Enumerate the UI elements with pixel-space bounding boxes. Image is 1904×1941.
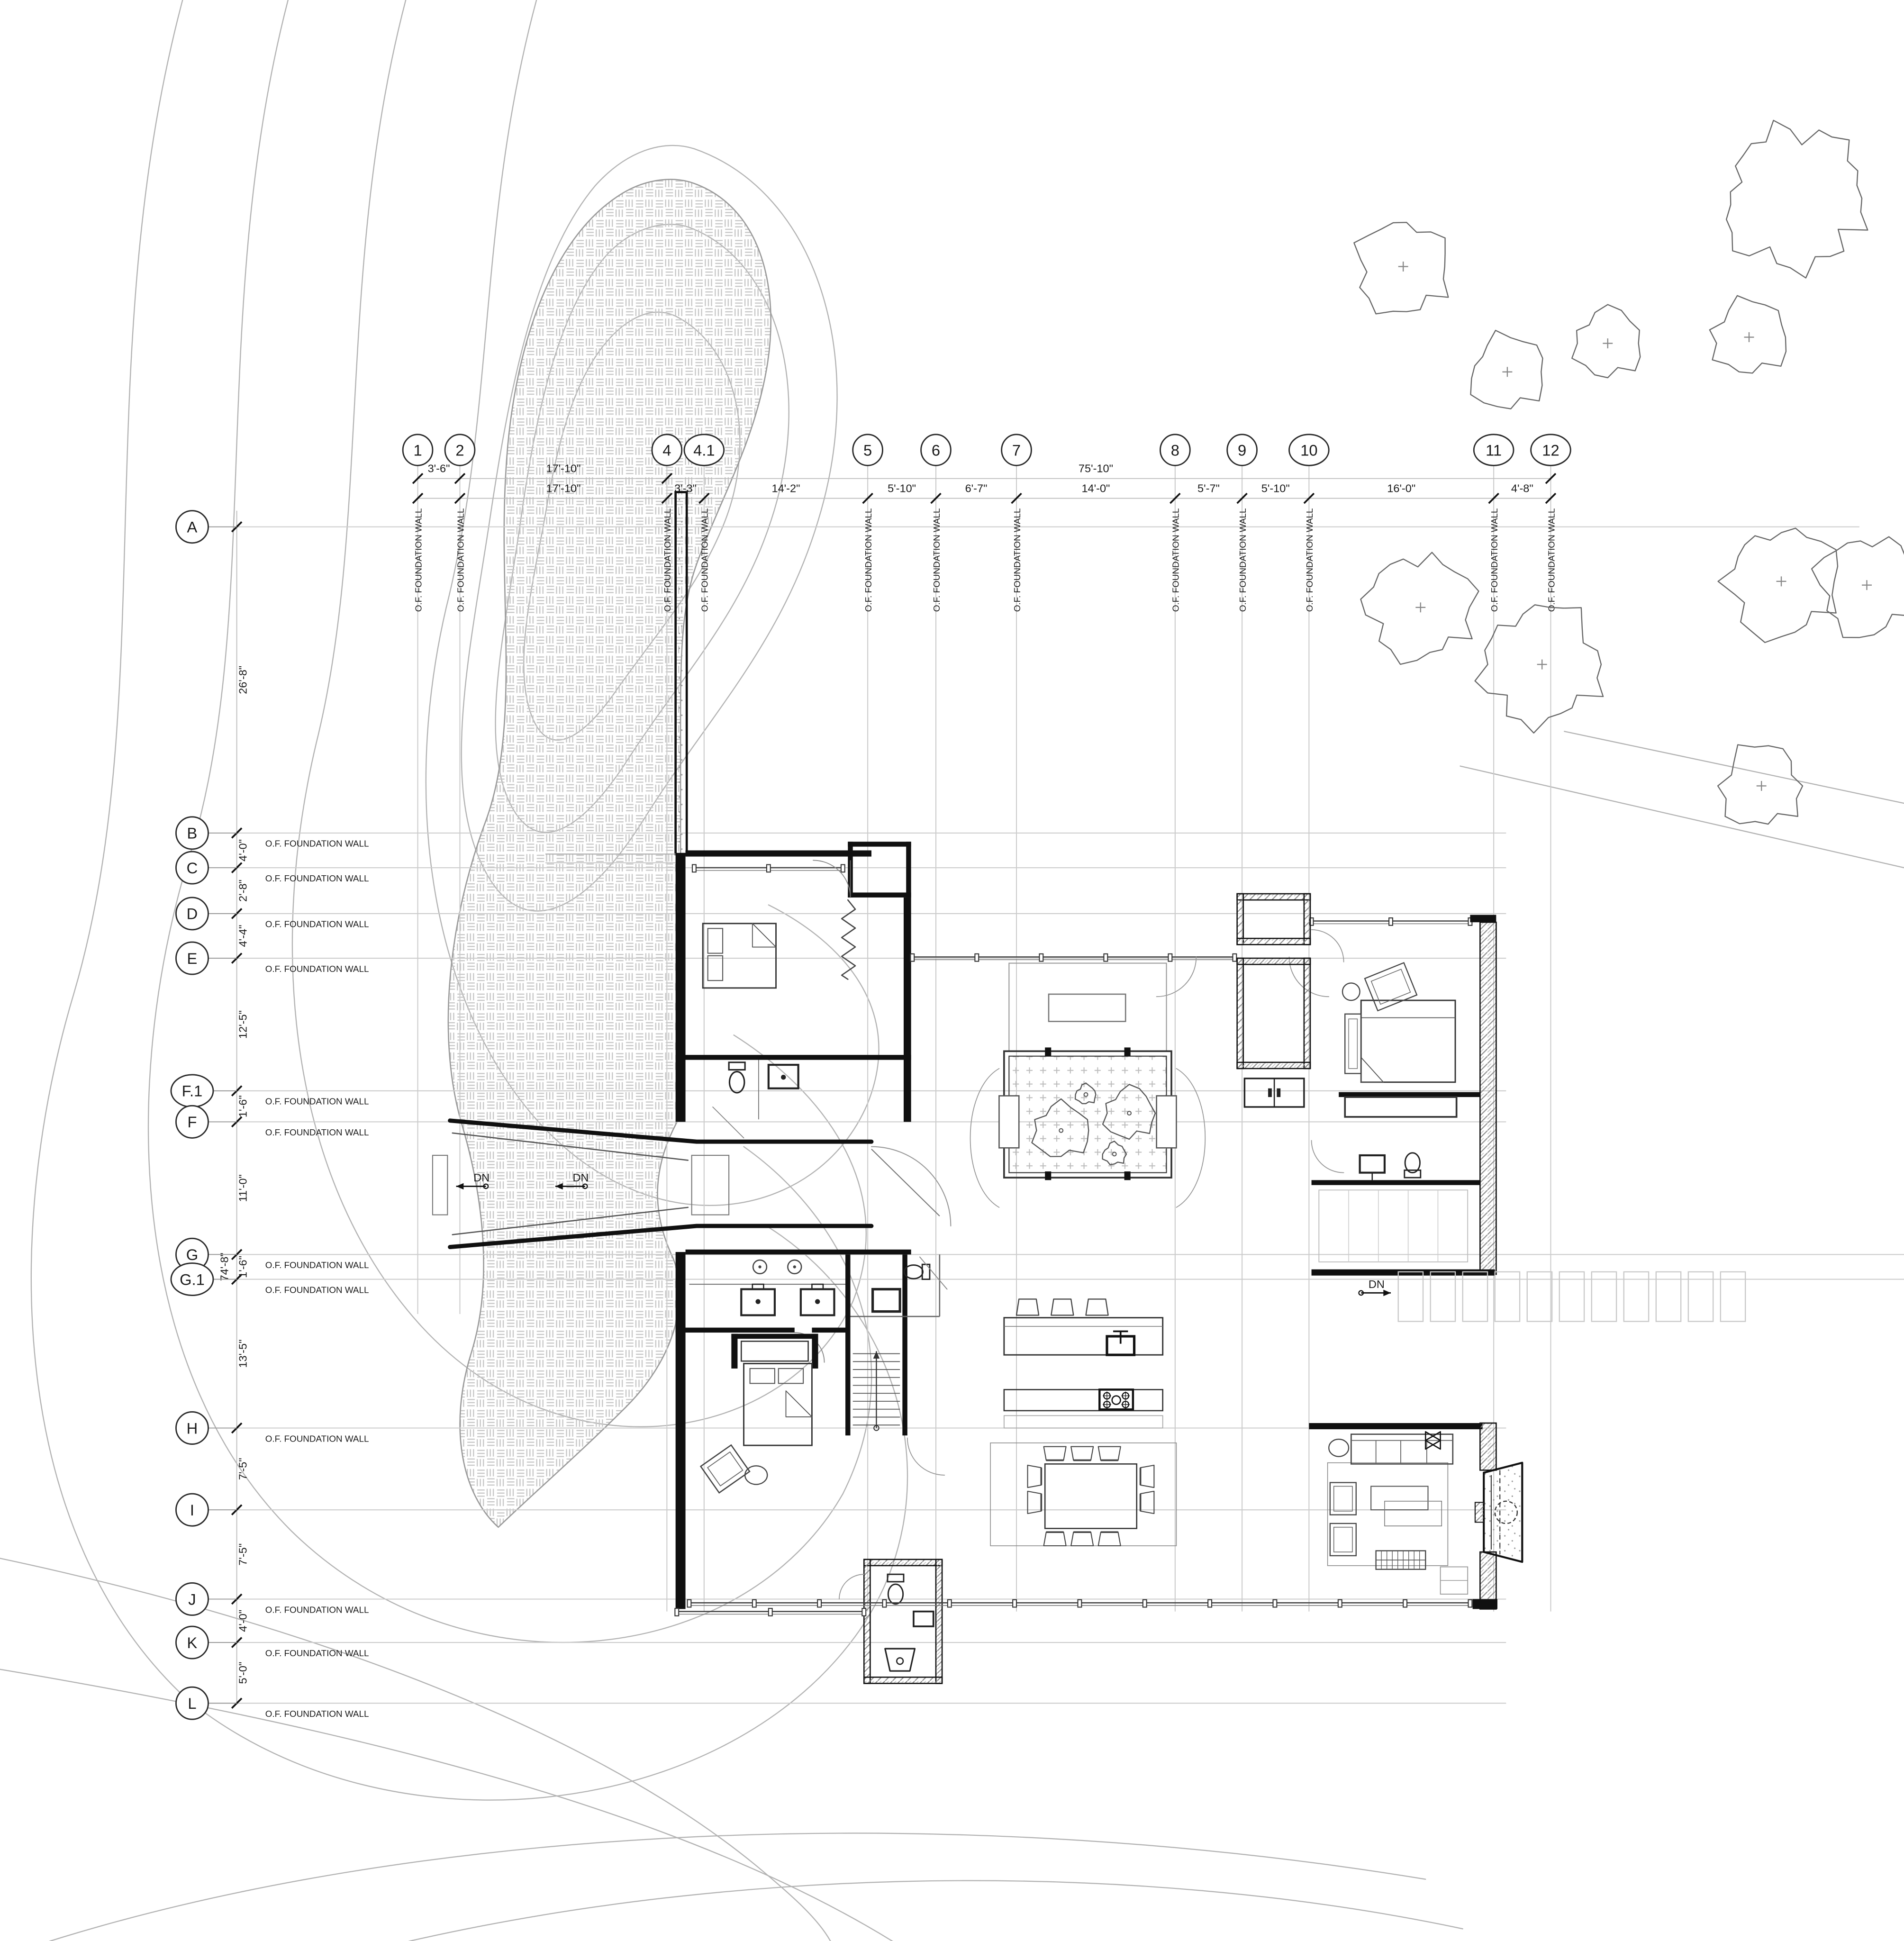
foundation-wall-label: O.F. FOUNDATION WALL	[1238, 508, 1248, 612]
tree-canopy-outline	[1470, 330, 1542, 409]
bar-stool	[1051, 1299, 1073, 1315]
dining-chair	[1071, 1532, 1093, 1546]
grid-bubble-D: D	[176, 898, 208, 930]
foundation-wall-label: O.F. FOUNDATION WALL	[932, 508, 942, 612]
foundation-wall-label: O.F. FOUNDATION WALL	[863, 508, 873, 612]
insulated-wall	[1237, 894, 1310, 900]
dimension-label: 13'-5"	[237, 1340, 249, 1368]
planter-bench	[999, 1096, 1019, 1148]
mullion-tick	[1078, 1600, 1082, 1607]
dimension-label: 75'-10"	[1079, 463, 1113, 475]
grid-bubble-10: 10	[1289, 435, 1329, 465]
handle	[1268, 1088, 1272, 1097]
grid-bubble-number: 8	[1171, 441, 1179, 459]
dining-table	[1045, 1464, 1137, 1528]
foundation-wall-label: O.F. FOUNDATION WALL	[265, 1605, 369, 1614]
grid-bubble-J: J	[176, 1583, 208, 1615]
grid-bubble-11: 11	[1474, 435, 1514, 465]
east-wall	[904, 898, 911, 1122]
insulated-wall	[936, 1560, 942, 1684]
pillow	[750, 1369, 775, 1383]
tree-canopy	[1718, 745, 1803, 824]
grid-bubble-4: 4	[652, 435, 682, 465]
stair	[845, 1254, 944, 1475]
chair-rotated	[701, 1445, 750, 1493]
blanket-fold	[1361, 1057, 1383, 1082]
bed-outline	[744, 1363, 812, 1445]
dining-chair	[1098, 1447, 1121, 1460]
dining-area	[990, 1443, 1176, 1546]
entry-stoop	[433, 1155, 447, 1215]
slatted-bench	[1376, 1551, 1426, 1569]
wall	[845, 1254, 850, 1435]
core-closets	[1237, 894, 1310, 1069]
wall	[731, 1334, 737, 1369]
sink-drain	[815, 1299, 820, 1304]
concrete-blade-wall	[676, 492, 687, 854]
planter-bench	[1157, 1096, 1177, 1148]
toilet-bowl	[729, 1071, 744, 1092]
fireplace	[1425, 1423, 1522, 1609]
firebox	[1475, 1502, 1484, 1522]
corner-cap	[1470, 915, 1496, 923]
foundation-wall-label: O.F. FOUNDATION WALL	[700, 508, 710, 612]
contour-line	[50, 1833, 1426, 1941]
ottoman	[745, 1466, 767, 1484]
mullion-tick	[1013, 1600, 1016, 1607]
armchair-seat	[1334, 1527, 1352, 1552]
tree-canopy	[1470, 330, 1542, 409]
mullion-tick	[1168, 954, 1172, 961]
handle	[1277, 1088, 1280, 1097]
grid-bubble-8: 8	[1160, 435, 1190, 465]
mullion-tick	[1233, 954, 1236, 961]
bathroom-2	[1312, 1097, 1457, 1180]
down-arrow-label: DN	[456, 1171, 490, 1189]
mullion-tick	[692, 865, 696, 872]
west-wall	[676, 853, 686, 1122]
dining-rug	[990, 1443, 1176, 1546]
tree-canopy	[1475, 605, 1603, 733]
drawing-path	[1071, 1447, 1093, 1460]
mullion-tick	[1039, 954, 1043, 961]
grid-bubble-letter: E	[187, 950, 198, 967]
mullion-tick	[1104, 954, 1107, 961]
frame-tab	[1124, 1171, 1131, 1180]
toilet-tank	[1405, 1170, 1421, 1178]
tree-canopy-outline	[1360, 553, 1478, 664]
tree-canopy-outline	[1354, 222, 1448, 314]
bedroom-1	[676, 842, 911, 1122]
insulated-wall	[1237, 894, 1243, 944]
grid-bubble-L: L	[176, 1687, 208, 1719]
west-wall	[676, 1252, 686, 1609]
kitchen	[1004, 1299, 1163, 1428]
dimension-label: 11'-0"	[237, 1174, 249, 1202]
foundation-wall-label: O.F. FOUNDATION WALL	[265, 1285, 369, 1295]
north-wall	[686, 1250, 911, 1254]
contour-line	[409, 1881, 1462, 1941]
down-label: DN	[573, 1171, 589, 1184]
vanity-counter	[1345, 1097, 1456, 1117]
north-wall	[1309, 1423, 1482, 1429]
grid-bubble-number: 4	[662, 441, 671, 459]
sink-drain	[781, 1075, 786, 1079]
dimensions: 3'-6"17'-10"75'-10"17'-10"3'-3"14'-2"5'-…	[218, 463, 1556, 1708]
dimension-label: 4'-0"	[237, 839, 249, 862]
grid-bubble-letter: B	[187, 825, 198, 842]
drawing-path	[1028, 1465, 1042, 1487]
grid-bubble-number: 1	[413, 441, 422, 459]
burner-center	[1112, 1396, 1121, 1405]
grid-bubble-letter: A	[187, 518, 198, 536]
insulated-wall	[1304, 958, 1310, 1069]
mullion-tick	[975, 954, 979, 961]
tree-canopy	[1726, 120, 1868, 278]
grid-bubble-letter: G.1	[180, 1270, 205, 1288]
grid-bubble-G.1: G.1	[171, 1263, 213, 1296]
door-swing	[1312, 930, 1344, 962]
mullion-tick	[688, 1600, 691, 1607]
headboard	[741, 1341, 808, 1361]
mullion-tick	[767, 865, 771, 872]
wall	[731, 1334, 818, 1339]
grid-bubble-B: B	[176, 817, 208, 849]
contour-line	[0, 1667, 892, 1941]
tree-canopy	[1360, 553, 1478, 664]
foundation-wall-label: O.F. FOUNDATION WALL	[265, 1260, 369, 1270]
foundation-wall-label: O.F. FOUNDATION WALL	[413, 508, 423, 612]
grid-bubble-letter: G	[186, 1246, 198, 1263]
powder-room	[839, 1560, 942, 1684]
insulated-wall	[864, 1560, 942, 1566]
east-insulated-wall	[1480, 922, 1496, 1274]
mullion-tick	[1273, 1600, 1277, 1607]
sink	[1360, 1155, 1385, 1173]
grid-bubble-F.1: F.1	[171, 1075, 213, 1107]
grid-bubble-number: 10	[1300, 441, 1317, 459]
grid-bubble-9: 9	[1227, 435, 1257, 465]
skylight	[1049, 994, 1125, 1022]
counter-ledge	[1004, 1415, 1163, 1428]
grid-bubble-F: F	[176, 1106, 208, 1138]
drawing-path	[1141, 1465, 1154, 1487]
roof-outline	[1009, 963, 1166, 1052]
closet-strip	[1319, 1190, 1468, 1262]
blanket-fold	[786, 1391, 812, 1417]
range-counter	[1004, 1389, 1163, 1410]
bath-south-wall	[1312, 1180, 1480, 1185]
door-swing	[1176, 1069, 1205, 1207]
grid-bubble-letter: L	[188, 1695, 196, 1712]
tree-canopy-outline	[1726, 120, 1868, 278]
contour-line	[1564, 731, 1904, 803]
pillow	[708, 928, 723, 953]
mullion-tick	[1469, 1600, 1472, 1607]
door-swing	[871, 1147, 951, 1226]
dimension-label: 17'-10"	[546, 482, 580, 495]
mullion-tick	[1389, 918, 1393, 925]
side-table	[1342, 983, 1360, 1000]
insulated-wall	[1304, 894, 1310, 944]
light-center	[758, 1265, 761, 1268]
grid-bubble-letter: H	[187, 1419, 198, 1437]
door-swing	[839, 1574, 864, 1599]
grid-bubble-letter: I	[190, 1501, 194, 1519]
dimension-label: 7'-5"	[237, 1458, 249, 1480]
headboard-wall	[812, 1334, 818, 1369]
foundation-wall-label: O.F. FOUNDATION WALL	[662, 508, 672, 612]
door-swing	[1312, 1141, 1344, 1173]
grid-bubble-1: 1	[403, 435, 433, 465]
drawing-path	[1098, 1532, 1121, 1546]
dining-chair	[1044, 1532, 1066, 1546]
grid-bubble-H: H	[176, 1412, 208, 1444]
window-wall	[1310, 918, 1472, 925]
bench	[1345, 1014, 1361, 1074]
grid-bubble-number: 4.1	[693, 441, 715, 459]
tree-canopy	[1710, 296, 1786, 373]
tree-canopy-outline	[1710, 296, 1786, 373]
wardrobe	[1244, 1079, 1304, 1107]
dimension-label: 3'-6"	[428, 463, 450, 475]
south-wall	[1312, 1270, 1495, 1276]
dimension-label: 5'-10"	[1261, 482, 1290, 495]
bed	[1361, 1000, 1455, 1082]
dimension-label: 1'-6"	[237, 1095, 249, 1117]
closet-wall	[848, 892, 911, 897]
foundation-wall-label: O.F. FOUNDATION WALL	[265, 1433, 369, 1443]
tree-canopy-outline	[1718, 745, 1803, 824]
mullion-tick	[910, 954, 914, 961]
mullion-tick	[841, 865, 845, 872]
grid-bubble-I: I	[176, 1494, 208, 1526]
foundation-wall-label: O.F. FOUNDATION WALL	[265, 839, 369, 849]
coffee-table	[1371, 1486, 1428, 1510]
down-label: DN	[473, 1171, 490, 1184]
bench-cushion	[1349, 1019, 1357, 1069]
dimension-label: 4'-4"	[237, 925, 249, 947]
grid-bubble-6: 6	[921, 435, 951, 465]
foundation-wall-label: O.F. FOUNDATION WALL	[1546, 508, 1556, 612]
grid-bubble-number: 11	[1486, 441, 1502, 459]
mullion-tick	[1208, 1600, 1212, 1607]
tree-canopy	[1572, 305, 1640, 378]
insulated-wall	[864, 1560, 870, 1684]
bath-wall	[676, 1055, 911, 1060]
frame-tab	[1045, 1047, 1051, 1056]
grid-bubble-letter: C	[187, 859, 198, 877]
mullion-tick	[675, 1608, 679, 1616]
utility-sink	[885, 1649, 915, 1671]
courtyard-paving	[1009, 1056, 1166, 1173]
grid-bubble-letter: J	[188, 1590, 196, 1608]
grid-bubble-12: 12	[1531, 435, 1571, 465]
wall-sink	[914, 1612, 934, 1626]
insulated-wall	[1480, 1423, 1496, 1470]
dining-chair	[1098, 1532, 1121, 1546]
floor-plan-sheet: 3'-6"17'-10"75'-10"17'-10"3'-3"14'-2"5'-…	[0, 0, 1904, 1941]
dining-chair	[1044, 1447, 1066, 1460]
door-leaf	[871, 1149, 940, 1216]
grid-bubble-number: 7	[1012, 441, 1021, 459]
tree-canopy-outline	[1572, 305, 1640, 378]
bed-outline	[1361, 1000, 1455, 1082]
tree-canopy	[1354, 222, 1448, 314]
bed	[703, 924, 776, 988]
coffee-table	[1385, 1501, 1442, 1526]
drawing-path	[1071, 1532, 1093, 1546]
foundation-wall-label: O.F. FOUNDATION WALL	[265, 873, 369, 883]
shower-pan	[873, 1289, 900, 1312]
foundation-wall-label: O.F. FOUNDATION WALL	[1305, 508, 1315, 612]
grid-bubble-C: C	[176, 852, 208, 884]
dimension-label: 12'-5"	[237, 1010, 249, 1039]
mullion-tick	[769, 1608, 772, 1616]
drawing-path	[1098, 1447, 1121, 1460]
dimension-label: 5'-0"	[237, 1662, 249, 1684]
dimension-label: 16'-0"	[1387, 482, 1415, 495]
bar-stool	[1016, 1299, 1039, 1315]
rug-inner	[1371, 969, 1411, 1004]
insulated-wall	[1237, 958, 1243, 1069]
sink-drain	[755, 1299, 760, 1304]
bar-stool	[1086, 1299, 1108, 1315]
window-wall	[910, 954, 1236, 961]
tree-canopy-outline	[1812, 537, 1904, 638]
dimension-label: 5'-10"	[888, 482, 916, 495]
bed	[744, 1363, 812, 1445]
dining-chair	[1071, 1447, 1093, 1460]
living-area	[1309, 1423, 1482, 1569]
bath-partition	[812, 1328, 849, 1333]
bathroom-1	[713, 1060, 798, 1138]
grid-bubble-E: E	[176, 942, 208, 974]
corner-chair	[701, 1445, 768, 1493]
grid-bubble-letter: K	[187, 1634, 198, 1651]
grid-bubble-K: K	[176, 1626, 208, 1659]
island-counter	[1004, 1318, 1163, 1355]
blanket-fold	[753, 924, 776, 947]
tree-canopy-outline	[1475, 605, 1603, 733]
master-bedroom	[676, 1250, 911, 1493]
down-label: DN	[1369, 1278, 1385, 1290]
down-arrow-label: DN	[1359, 1278, 1391, 1296]
mullion-tick	[753, 1600, 756, 1607]
frame-tab	[1045, 1171, 1051, 1180]
foundation-wall-label: O.F. FOUNDATION WALL	[1171, 508, 1181, 612]
dimension-label: 17'-10"	[546, 463, 580, 475]
toilet-bowl	[888, 1584, 903, 1604]
dimension-label: 5'-7"	[1197, 482, 1220, 495]
insulated-wall	[864, 1677, 942, 1683]
corner-block	[1473, 1599, 1497, 1609]
foundation-wall-label: O.F. FOUNDATION WALL	[265, 919, 369, 929]
drawing-path	[1044, 1447, 1066, 1460]
drain	[897, 1658, 903, 1664]
mullion-tick	[1143, 1600, 1147, 1607]
frame-tab	[1124, 1047, 1131, 1056]
foundation-wall-label: O.F. FOUNDATION WALL	[455, 508, 465, 612]
dimension-label: 4'-0"	[237, 1610, 249, 1632]
dimension-label: 14'-0"	[1081, 482, 1110, 495]
tree-canopy	[1812, 537, 1904, 638]
wall	[676, 1328, 795, 1333]
north-wall	[686, 850, 871, 856]
door-swing	[970, 1069, 999, 1207]
light-center	[793, 1265, 796, 1268]
foundation-wall-label: O.F. FOUNDATION WALL	[1012, 508, 1022, 612]
foundation-wall-label: O.F. FOUNDATION WALL	[265, 1127, 369, 1137]
grid-bubble-5: 5	[853, 435, 883, 465]
mullion-tick	[817, 1600, 821, 1607]
insulated-wall	[1237, 1062, 1310, 1069]
dimension-label-overall: 74'-8"	[218, 1252, 230, 1281]
contour-line	[1460, 766, 1904, 868]
grid-bubble-letter: F	[187, 1113, 197, 1131]
insulated-wall	[1237, 958, 1310, 964]
rug	[1365, 963, 1417, 1011]
grid-bubble-4.1: 4.1	[684, 435, 724, 465]
shower-room	[850, 1254, 947, 1316]
closet-outline	[1319, 1190, 1468, 1262]
shower-door	[713, 1107, 743, 1138]
dimension-label: 6'-7"	[965, 482, 988, 495]
wall	[848, 842, 911, 846]
insulated-wall	[1237, 938, 1310, 944]
grid-bubble-number: 6	[932, 441, 940, 459]
toilet-tank	[888, 1574, 904, 1582]
master-bathroom	[689, 1260, 848, 1315]
dimension-label: 1'-6"	[237, 1256, 249, 1278]
area-rug-rotated	[1365, 963, 1417, 1011]
mullion-tick	[1403, 1600, 1407, 1607]
dimension-label: 14'-2"	[771, 482, 800, 495]
dimension-label: 2'-8"	[237, 880, 249, 902]
bedroom-2	[1312, 915, 1496, 1276]
dimension-label: 4'-8"	[1511, 482, 1533, 495]
foundation-wall-label: O.F. FOUNDATION WALL	[1489, 508, 1499, 612]
side-table	[1329, 1439, 1349, 1457]
courtyard	[910, 918, 1472, 1207]
drawing-path	[1044, 1532, 1066, 1546]
grid-bubble-number: 12	[1542, 441, 1559, 459]
armchair-seat	[1334, 1486, 1352, 1511]
mullion-tick	[948, 1600, 952, 1607]
dining-chair	[1141, 1465, 1154, 1487]
foundation-wall-label: O.F. FOUNDATION WALL	[265, 964, 369, 974]
dimension-label: 7'-5"	[237, 1543, 249, 1566]
chair-seat	[707, 1452, 743, 1486]
site-trees	[1354, 120, 1904, 824]
grid-bubble-A: A	[176, 511, 208, 543]
toilet-tank	[729, 1062, 745, 1070]
foundation-wall-label: O.F. FOUNDATION WALL	[265, 1097, 369, 1107]
grid-bubble-number: 5	[863, 441, 872, 459]
foundation-wall-label: O.F. FOUNDATION WALL	[265, 1648, 369, 1658]
shower-door	[920, 1257, 947, 1289]
mullion-tick	[862, 1608, 866, 1616]
wall	[906, 842, 911, 898]
fireplace-mass	[1484, 1463, 1522, 1562]
foundation-wall-label: O.F. FOUNDATION WALL	[265, 1709, 369, 1719]
grid-bubble-number: 2	[455, 441, 464, 459]
arrow-head	[1383, 1290, 1391, 1297]
dining-chair	[1028, 1465, 1042, 1487]
pillow	[708, 956, 723, 980]
window-wall	[688, 1600, 1472, 1607]
grid-bubble-2: 2	[445, 435, 475, 465]
